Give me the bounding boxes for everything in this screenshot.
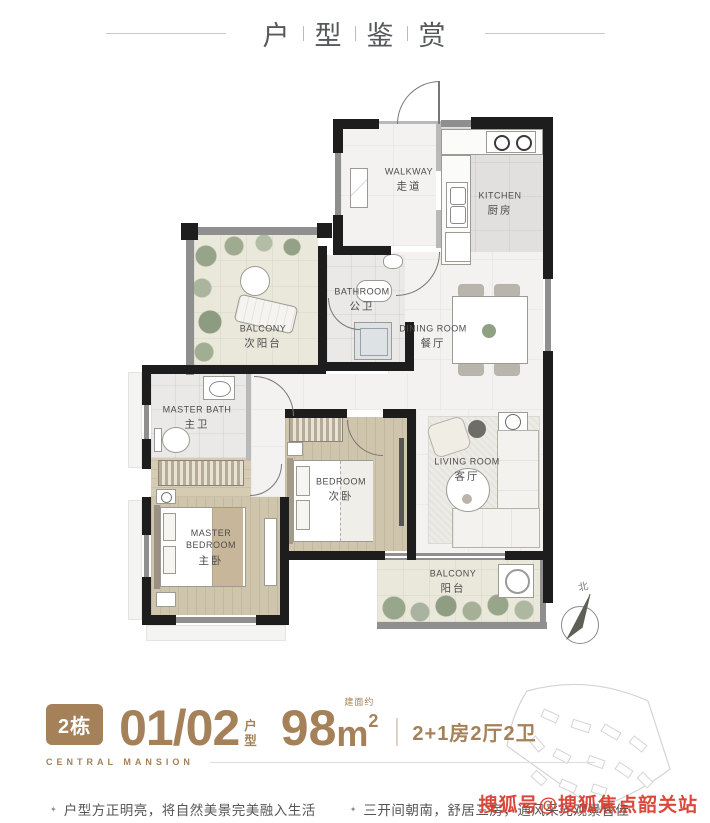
wall	[142, 365, 326, 374]
siteplan-buildings	[529, 709, 652, 796]
kitchen-cabinet	[445, 232, 471, 262]
watermark: 搜狐号@搜狐焦点韶关站	[478, 790, 698, 817]
ac-platform	[350, 168, 368, 208]
unit-label: 户 型	[244, 719, 257, 748]
nightstand	[156, 592, 176, 607]
wall	[285, 551, 385, 560]
unit-area: 98 m 2 建面约	[281, 708, 379, 749]
compass-north-label: 北	[577, 577, 590, 594]
wall	[142, 365, 151, 405]
washer-drum-icon	[505, 569, 530, 594]
room-label-bathroom: BATHROOM 公卫	[334, 287, 389, 314]
table-decor	[462, 494, 472, 504]
pillow	[163, 546, 176, 574]
wall	[318, 246, 327, 370]
master-wardrobe	[158, 460, 244, 486]
unit-number: 01/02	[119, 708, 239, 749]
wall-window	[144, 405, 149, 439]
side-table	[468, 420, 486, 438]
room-label-bedroom: BEDROOM 次卧	[316, 477, 366, 504]
layout-spec: 2+1房2厅2卫	[412, 717, 536, 746]
wall-partition	[436, 123, 441, 171]
stove-burner-icon	[494, 135, 510, 151]
bay-window	[176, 617, 256, 623]
room-label-master-bath: MASTER BATH 主卫	[163, 405, 232, 432]
room-label-dining: DINING ROOM 餐厅	[399, 324, 467, 351]
side-window-ledge	[128, 372, 142, 468]
building-badge: 2栋	[46, 704, 103, 745]
brand-line	[210, 762, 595, 763]
wall	[543, 351, 553, 603]
area-superscript: 2	[368, 711, 378, 732]
title-char: 型	[304, 14, 355, 53]
wall	[142, 439, 151, 469]
table-plant-icon	[482, 324, 496, 338]
page-title: 户 型 鉴 赏	[0, 14, 710, 53]
info-divider	[396, 718, 398, 746]
bedroom-wardrobe	[289, 416, 343, 442]
nightstand	[287, 442, 303, 456]
title-line-left	[106, 33, 226, 34]
wall-window	[144, 535, 149, 577]
title-char: 鉴	[356, 14, 407, 53]
unit-info: 2栋 01/02 户 型 98 m 2 建面约 2+1房2厅2卫	[46, 704, 537, 749]
title-char: 赏	[408, 14, 459, 53]
area-number: 98	[281, 708, 337, 749]
title-line-right	[485, 33, 605, 34]
sink-basin	[450, 206, 466, 224]
project-brand: CENTRAL MANSION	[46, 757, 595, 767]
room-label-kitchen: KITCHEN 厨房	[478, 191, 521, 218]
bullet-icon: ✦	[350, 805, 357, 814]
dining-chair	[494, 362, 520, 376]
sliding-door	[385, 558, 505, 560]
pillow	[296, 500, 310, 530]
room-label-living: LIVING ROOM 客厅	[434, 457, 500, 484]
wall-window	[545, 279, 551, 351]
room-label-walkway: WALKWAY 走道	[385, 167, 433, 194]
balcony-rail	[186, 227, 332, 235]
wall	[142, 615, 176, 625]
wall-partition	[246, 374, 251, 460]
tv-panel	[399, 438, 404, 526]
wall	[142, 497, 151, 535]
balcony-rail	[377, 622, 547, 629]
side-window-ledge	[128, 500, 142, 620]
sink-basin	[209, 381, 231, 397]
shower-glass	[360, 328, 388, 356]
wall	[407, 409, 416, 560]
clock-icon	[505, 414, 521, 430]
bay-window-sill	[146, 625, 286, 641]
wall-corner	[317, 223, 332, 238]
entry-door-leaf	[438, 81, 440, 124]
compass-needle-icon	[558, 588, 602, 646]
wall	[285, 409, 347, 418]
wall-corner	[181, 223, 198, 240]
wall	[505, 551, 545, 560]
wall	[333, 119, 343, 153]
patio-table	[240, 266, 270, 296]
balcony-rail	[186, 227, 194, 375]
title-char: 户	[252, 14, 303, 53]
wall	[543, 117, 553, 279]
wall	[318, 362, 414, 371]
entry-door-arc	[397, 81, 440, 124]
wall-window	[441, 120, 471, 127]
project-name: CENTRAL MANSION	[46, 757, 194, 767]
stove-burner-icon	[516, 135, 532, 151]
bullet-icon: ✦	[50, 805, 57, 814]
pillow	[296, 466, 310, 496]
room-label-master-bedroom: MASTER BEDROOM 主卧	[180, 528, 242, 568]
lamp-icon	[161, 492, 172, 503]
pillow	[163, 513, 176, 541]
sink-basin	[450, 187, 466, 205]
room-label-balcony-south: BALCONY 阳台	[430, 569, 477, 596]
sliding-door	[385, 553, 505, 556]
tv-cabinet	[264, 518, 277, 586]
dining-chair	[458, 362, 484, 376]
wall	[333, 246, 391, 255]
selling-point: ✦ 户型方正明亮，将自然美景完美融入生活	[50, 799, 316, 819]
wall	[280, 497, 289, 625]
wall-window	[335, 153, 341, 215]
title-chars: 户 型 鉴 赏	[252, 14, 459, 53]
area-note: 建面约	[344, 695, 374, 708]
floorplan-flyer: 户 型 鉴 赏	[0, 0, 710, 823]
sofa-chaise	[452, 508, 540, 548]
area-unit: m	[336, 720, 368, 749]
wall	[471, 117, 545, 129]
room-label-balcony-north: BALCONY 次阳台	[240, 324, 287, 351]
wall-partition	[436, 210, 441, 248]
toilet-tank	[154, 428, 162, 452]
